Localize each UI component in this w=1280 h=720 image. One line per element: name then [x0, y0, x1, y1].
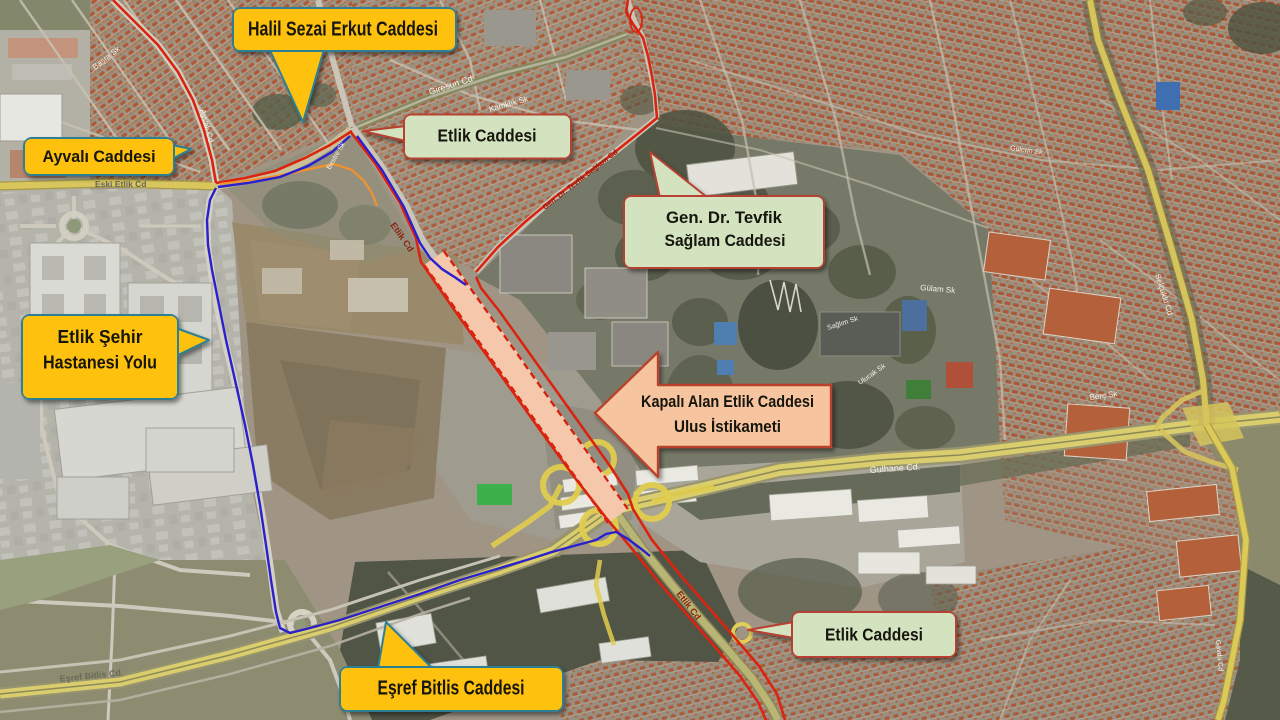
- svg-text:Eşref Bitlis Caddesi: Eşref Bitlis Caddesi: [378, 677, 525, 700]
- svg-text:Halil Sezai Erkut Caddesi: Halil Sezai Erkut Caddesi: [248, 18, 438, 41]
- svg-text:Eski Etlik Cd: Eski Etlik Cd: [95, 179, 147, 189]
- svg-text:Etlik Caddesi: Etlik Caddesi: [825, 625, 923, 645]
- svg-text:Kapalı Alan Etlik Caddesi: Kapalı Alan Etlik Caddesi: [641, 393, 814, 411]
- svg-text:Ulus İstikameti: Ulus İstikameti: [674, 418, 781, 436]
- svg-text:Etlik Caddesi: Etlik Caddesi: [438, 126, 537, 146]
- svg-text:Sağlam Caddesi: Sağlam Caddesi: [665, 231, 786, 250]
- svg-text:Gen. Dr. Tevfik: Gen. Dr. Tevfik: [666, 208, 783, 227]
- svg-text:Ayvalı Caddesi: Ayvalı Caddesi: [43, 147, 156, 166]
- svg-text:Etlik Şehir: Etlik Şehir: [58, 327, 143, 347]
- svg-text:Hastanesi Yolu: Hastanesi Yolu: [43, 353, 157, 373]
